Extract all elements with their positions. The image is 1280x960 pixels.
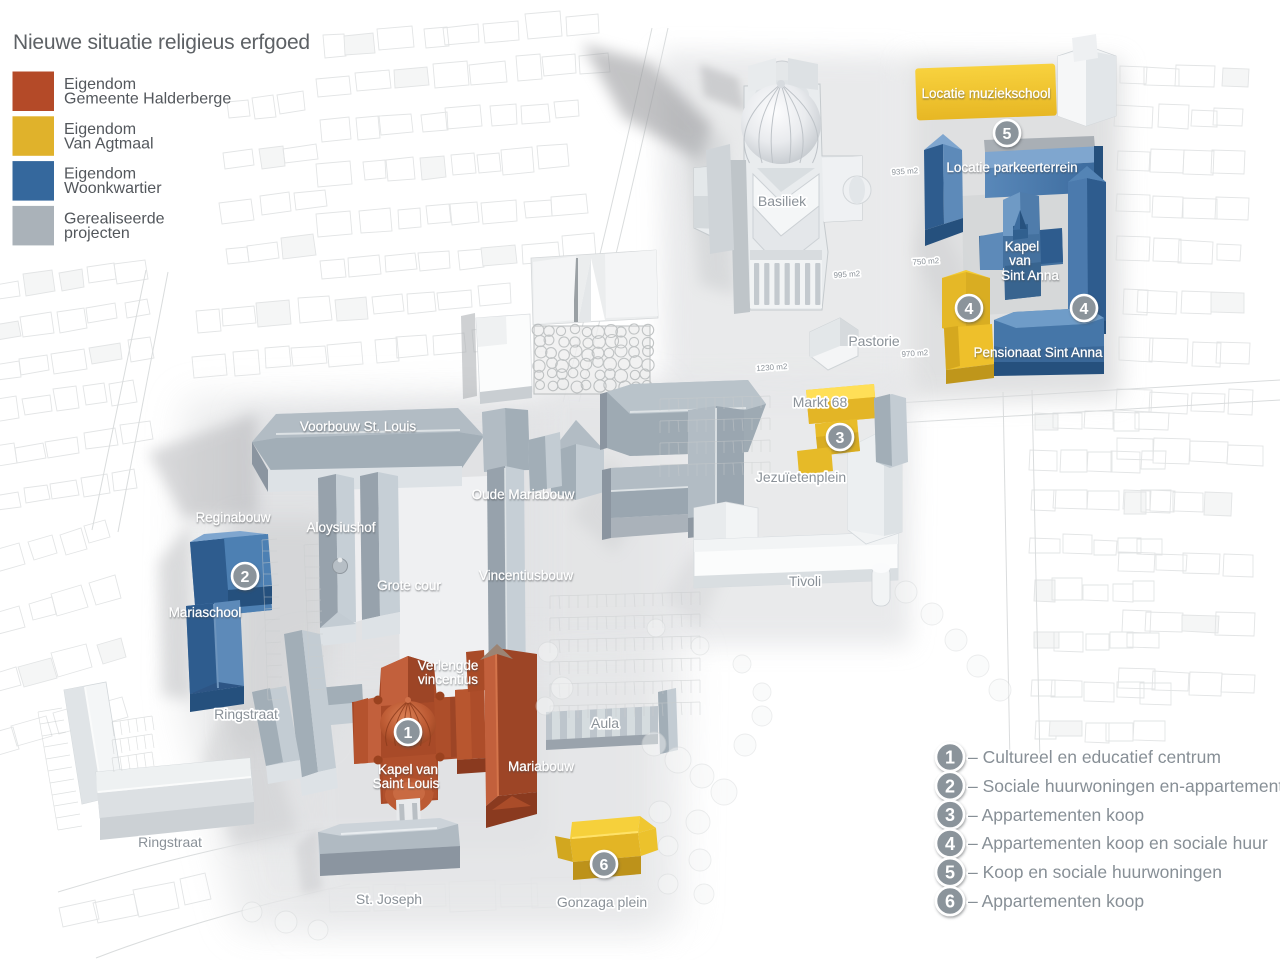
svg-text:Nieuwe situatie religieus erfg: Nieuwe situatie religieus erfgoed <box>13 31 310 54</box>
svg-text:Kapel van: Kapel van <box>378 762 438 777</box>
svg-text:Voorbouw St. Louis: Voorbouw St. Louis <box>300 419 417 434</box>
svg-text:Ringstraat: Ringstraat <box>214 706 278 722</box>
svg-text:Sint Anna: Sint Anna <box>1001 268 1059 283</box>
svg-text:Locatie muziekschool: Locatie muziekschool <box>921 86 1050 101</box>
svg-text:Vincentiusbouw: Vincentiusbouw <box>479 568 574 583</box>
svg-text:– Appartementen koop: – Appartementen koop <box>968 891 1144 911</box>
svg-text:Aula: Aula <box>591 715 619 731</box>
svg-text:970 m2: 970 m2 <box>901 348 929 359</box>
svg-text:5: 5 <box>1003 126 1012 143</box>
svg-text:Woonkwartier: Woonkwartier <box>64 180 162 197</box>
svg-text:Pensionaat Sint Anna: Pensionaat Sint Anna <box>973 345 1103 360</box>
svg-text:vincentius: vincentius <box>418 672 478 687</box>
svg-text:Basiliek: Basiliek <box>758 193 807 209</box>
svg-text:4: 4 <box>965 301 974 318</box>
svg-text:Aloysiushof: Aloysiushof <box>306 520 375 535</box>
svg-text:2: 2 <box>945 776 955 796</box>
svg-text:750 m2: 750 m2 <box>912 256 940 267</box>
svg-text:projecten: projecten <box>64 225 130 242</box>
svg-text:2: 2 <box>241 569 250 586</box>
svg-text:Oude Mariabouw: Oude Mariabouw <box>472 487 575 502</box>
svg-text:995 m2: 995 m2 <box>833 269 861 280</box>
svg-text:Pastorie: Pastorie <box>848 333 900 349</box>
svg-text:1: 1 <box>404 725 413 742</box>
svg-text:Gonzaga plein: Gonzaga plein <box>557 894 647 910</box>
svg-text:4: 4 <box>945 834 955 854</box>
svg-text:Gemeente Halderberge: Gemeente Halderberge <box>64 91 231 108</box>
svg-text:– Appartementen koop en social: – Appartementen koop en sociale huur <box>968 833 1268 853</box>
svg-text:Jezuïetenplein: Jezuïetenplein <box>756 469 846 485</box>
svg-text:Grote cour: Grote cour <box>377 578 441 593</box>
svg-text:Kapel: Kapel <box>1005 239 1040 254</box>
svg-text:5: 5 <box>945 863 955 883</box>
svg-text:– Cultureel en educatief centr: – Cultureel en educatief centrum <box>968 747 1221 767</box>
svg-text:3: 3 <box>836 430 845 447</box>
svg-text:Ringstraat: Ringstraat <box>138 834 202 850</box>
svg-text:3: 3 <box>945 805 955 825</box>
svg-text:Locatie parkeerterrein: Locatie parkeerterrein <box>946 160 1077 175</box>
svg-text:Reginabouw: Reginabouw <box>195 510 270 525</box>
svg-text:– Sociale huurwoningen en-appa: – Sociale huurwoningen en-appartementen <box>968 776 1280 796</box>
svg-text:Van Agtmaal: Van Agtmaal <box>64 135 154 152</box>
svg-text:Markt 68: Markt 68 <box>793 394 848 410</box>
svg-text:6: 6 <box>945 891 955 911</box>
svg-text:– Koop en sociale huurwoningen: – Koop en sociale huurwoningen <box>968 862 1222 882</box>
svg-text:935 m2: 935 m2 <box>891 166 919 177</box>
svg-text:Mariabouw: Mariabouw <box>508 759 574 774</box>
svg-text:6: 6 <box>600 857 609 874</box>
svg-text:St. Joseph: St. Joseph <box>356 891 422 907</box>
svg-text:Verlengde: Verlengde <box>418 658 479 673</box>
svg-text:– Appartementen koop: – Appartementen koop <box>968 805 1144 825</box>
svg-text:van: van <box>1009 253 1031 268</box>
svg-text:Saint Louis: Saint Louis <box>373 776 440 791</box>
svg-text:1: 1 <box>945 747 955 767</box>
svg-text:Tivoli: Tivoli <box>789 573 821 589</box>
svg-text:4: 4 <box>1080 301 1089 318</box>
svg-text:Mariaschool: Mariaschool <box>169 605 242 620</box>
